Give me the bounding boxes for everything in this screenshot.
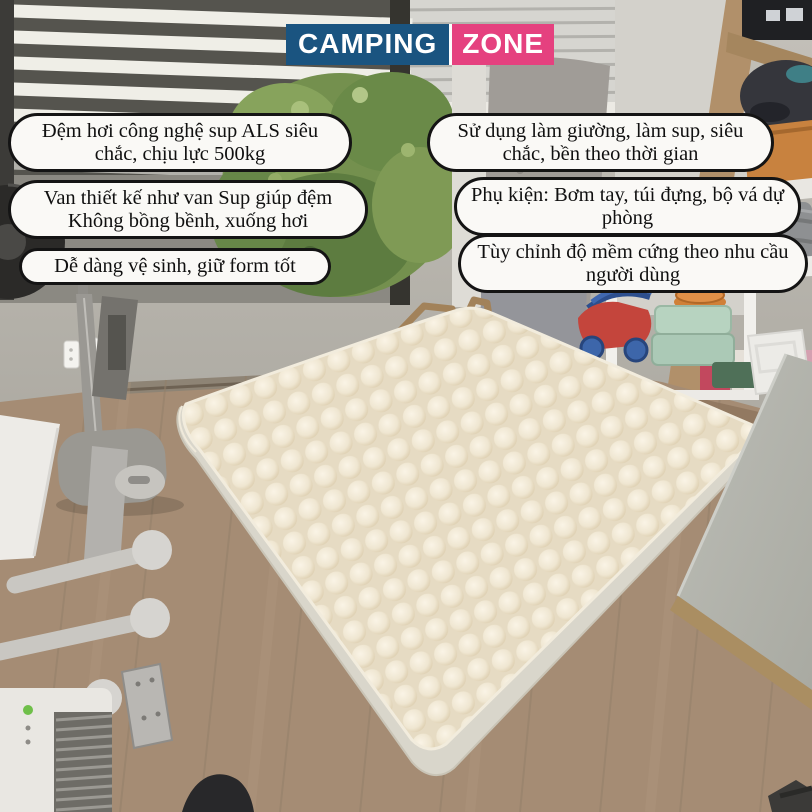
callout-firmness: Tùy chỉnh độ mềm cứng theo nhu cầu người… <box>458 234 808 293</box>
callout-durability: Đệm hơi công nghệ sup ALS siêu chắc, chị… <box>8 113 352 172</box>
air-purifier <box>0 688 112 812</box>
brand-logo: CAMPING ZONE <box>286 24 554 65</box>
callout-cleaning-text: Dễ dàng vệ sinh, giữ form tốt <box>54 255 296 278</box>
callout-valve-text: Van thiết kế như van Sup giúp đệm Không … <box>23 187 353 232</box>
brand-logo-zone: ZONE <box>449 24 554 65</box>
brand-logo-camping: CAMPING <box>286 24 449 65</box>
callout-usage: Sử dụng làm giường, làm sup, siêu chắc, … <box>427 113 774 172</box>
callout-accessories-text: Phụ kiện: Bơm tay, túi đựng, bộ vá dự ph… <box>469 184 786 229</box>
callout-usage-text: Sử dụng làm giường, làm sup, siêu chắc, … <box>442 120 759 165</box>
callout-firmness-text: Tùy chỉnh độ mềm cứng theo nhu cầu người… <box>473 241 793 286</box>
callout-valve: Van thiết kế như van Sup giúp đệm Không … <box>8 180 368 239</box>
callout-accessories: Phụ kiện: Bơm tay, túi đựng, bộ vá dự ph… <box>454 177 801 236</box>
product-ad-image: CAMPING ZONE Đệm hơi công nghệ sup ALS s… <box>0 0 812 812</box>
callout-cleaning: Dễ dàng vệ sinh, giữ form tốt <box>19 248 331 285</box>
callout-durability-text: Đệm hơi công nghệ sup ALS siêu chắc, chị… <box>23 120 337 165</box>
